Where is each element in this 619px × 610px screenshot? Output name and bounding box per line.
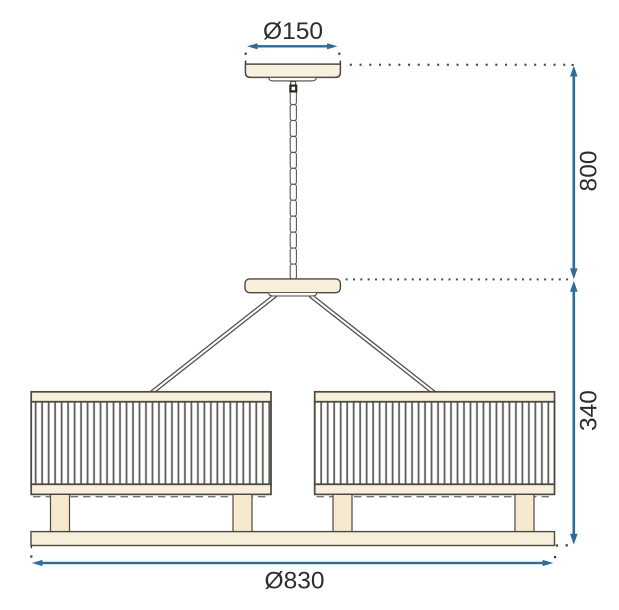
- svg-text:340: 340: [575, 390, 602, 431]
- svg-text:800: 800: [575, 151, 602, 192]
- svg-text:Ø150: Ø150: [263, 18, 323, 45]
- svg-text:Ø830: Ø830: [265, 568, 325, 595]
